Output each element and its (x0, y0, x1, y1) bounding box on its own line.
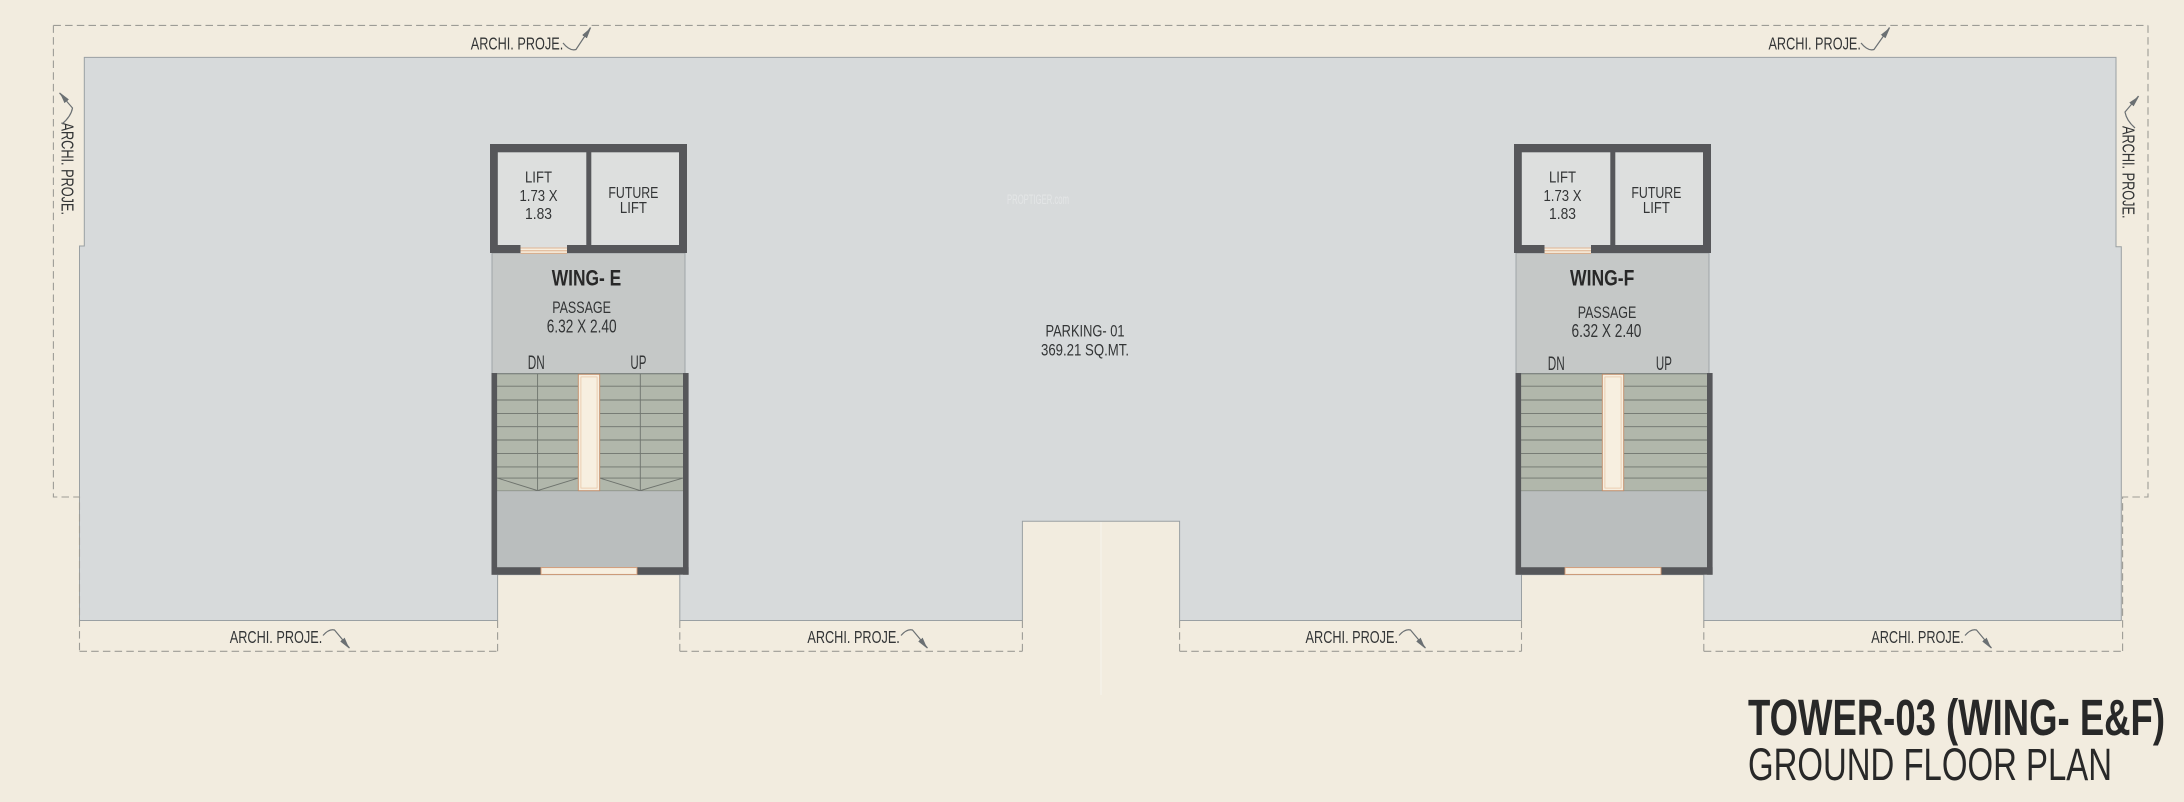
svg-text:WING-F: WING-F (1570, 265, 1634, 290)
svg-text:1.73 X: 1.73 X (1544, 188, 1583, 205)
svg-text:369.21 SQ.MT.: 369.21 SQ.MT. (1041, 342, 1129, 360)
svg-text:ARCHI. PROJE.: ARCHI. PROJE. (1306, 627, 1399, 647)
svg-text:PASSAGE: PASSAGE (1578, 303, 1637, 322)
svg-text:DN: DN (1548, 354, 1565, 375)
svg-text:1.83: 1.83 (1549, 206, 1576, 223)
svg-text:TOWER-03 (WING- E&F): TOWER-03 (WING- E&F) (1748, 689, 2165, 746)
svg-text:UP: UP (1656, 354, 1672, 375)
svg-text:DN: DN (528, 353, 545, 374)
svg-text:ARCHI. PROJE.: ARCHI. PROJE. (2119, 126, 2139, 219)
svg-text:LIFT: LIFT (1643, 200, 1670, 217)
svg-text:LIFT: LIFT (1549, 169, 1576, 186)
svg-text:ARCHI. PROJE.: ARCHI. PROJE. (1871, 627, 1964, 647)
svg-text:LIFT: LIFT (620, 200, 647, 217)
svg-text:6.32 X 2.40: 6.32 X 2.40 (547, 316, 617, 336)
svg-text:ARCHI. PROJE.: ARCHI. PROJE. (58, 123, 78, 216)
svg-text:UP: UP (630, 353, 646, 374)
svg-text:GROUND FLOOR PLAN: GROUND FLOOR PLAN (1748, 739, 2112, 790)
svg-text:WING- E: WING- E (552, 265, 622, 290)
svg-text:LIFT: LIFT (525, 169, 552, 186)
svg-text:ARCHI. PROJE.: ARCHI. PROJE. (1768, 33, 1861, 53)
svg-text:ARCHI. PROJE.: ARCHI. PROJE. (471, 33, 564, 53)
svg-text:PARKING- 01: PARKING- 01 (1046, 322, 1125, 340)
svg-text:ARCHI. PROJE.: ARCHI. PROJE. (230, 627, 323, 647)
svg-text:6.32 X 2.40: 6.32 X 2.40 (1572, 321, 1642, 341)
svg-text:ARCHI. PROJE.: ARCHI. PROJE. (807, 627, 900, 647)
svg-text:1.83: 1.83 (525, 206, 552, 223)
svg-text:1.73 X: 1.73 X (520, 188, 559, 205)
svg-text:PASSAGE: PASSAGE (552, 298, 611, 317)
svg-text:PROPTIGER.com: PROPTIGER.com (1007, 192, 1069, 207)
